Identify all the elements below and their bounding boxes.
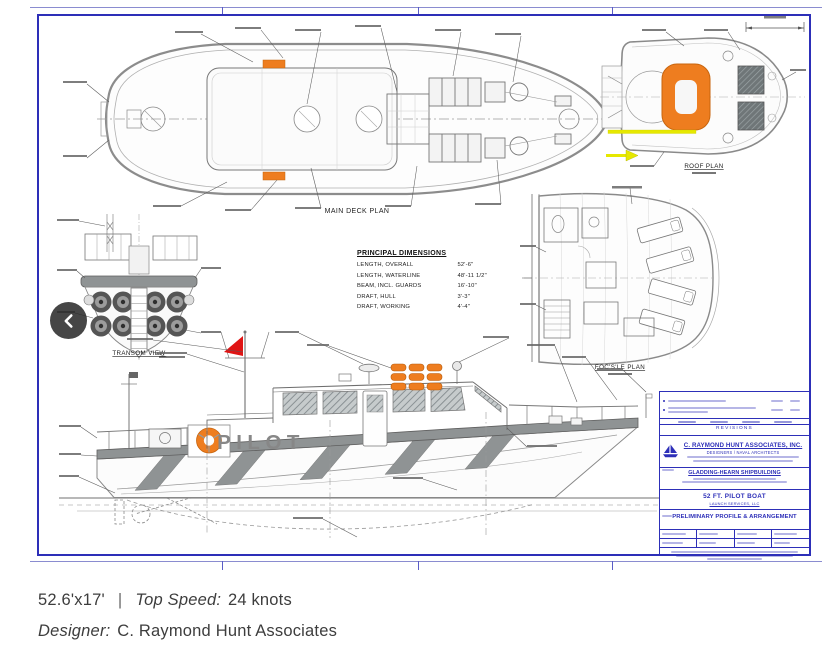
cabin-windows xyxy=(283,386,501,415)
caption: 52.6'x17'|Top Speed: 24 knots Designer: … xyxy=(38,591,337,641)
revisions-section: REVISIONS xyxy=(660,392,809,436)
builder-name: GLADDING-HEARN SHIPBUILDING xyxy=(660,470,809,476)
signal-flag xyxy=(224,336,243,356)
boat-title: 52 FT. PILOT BOAT xyxy=(660,493,809,500)
caption-line-specs: 52.6'x17'|Top Speed: 24 knots xyxy=(38,591,337,610)
caption-designer-value: C. Raymond Hunt Associates xyxy=(117,622,337,640)
principal-dimensions-table: PRINCIPAL DIMENSIONS LENGTH, OVERALL 52'… xyxy=(357,250,519,315)
profile-view: PILOT xyxy=(57,328,669,554)
fender-stack xyxy=(391,364,442,390)
caption-separator: | xyxy=(118,591,123,609)
title-block: REVISIONS C. RAYMOND HUNT ASSOCIATES, IN… xyxy=(659,391,810,555)
carousel-prev-button[interactable] xyxy=(50,302,87,339)
deck-stripe-yellow xyxy=(608,130,696,134)
company-logo-icon xyxy=(662,443,679,460)
dimension-row: DRAFT, WORKING 4'-4" xyxy=(357,304,519,310)
deck-hatch-orange xyxy=(263,60,285,68)
drawing-title: PRELIMINARY PROFILE & ARRANGEMENT xyxy=(660,514,809,520)
chevron-left-icon xyxy=(58,310,80,332)
engine-vent xyxy=(738,102,764,130)
caption-dimensions: 52.6'x17' xyxy=(38,591,105,609)
drawing-title-section: PRELIMINARY PROFILE & ARRANGEMENT xyxy=(660,514,809,530)
searchlight xyxy=(453,362,462,371)
note-strip xyxy=(660,548,809,563)
caption-top-speed-label: Top Speed: xyxy=(135,591,221,609)
dimension-row: LENGTH, WATERLINE 48'-11 1/2" xyxy=(357,273,519,279)
dimension-row: LENGTH, OVERALL 52'-6" xyxy=(357,262,519,268)
sheet-margin-line-top xyxy=(30,7,822,8)
deck-hatch-orange xyxy=(263,172,285,180)
dimension-detail xyxy=(742,12,808,34)
title-block-grid xyxy=(660,530,809,548)
boat-subtitle: LAUNCH SERVICES, LLC xyxy=(660,501,809,506)
hull-name-text: PILOT xyxy=(217,431,305,454)
dimension-row: BEAM, INCL. GUARDS 16'-10" xyxy=(357,283,519,289)
caption-designer-label: Designer: xyxy=(38,622,110,640)
boat-title-section: 52 FT. PILOT BOAT LAUNCH SERVICES, LLC xyxy=(660,490,809,510)
rub-rail-band xyxy=(81,276,197,287)
company-type: DESIGNERS / NAVAL ARCHITECTS xyxy=(679,450,807,455)
caption-top-speed-value: 24 knots xyxy=(228,591,292,609)
dimension-row: DRAFT, HULL 3'-3" xyxy=(357,294,519,300)
page: { "carousel": { "prev_icon": "chevron-le… xyxy=(0,0,830,656)
fold-tick xyxy=(612,561,613,570)
revisions-label: REVISIONS xyxy=(660,424,809,432)
engine-vent xyxy=(738,66,764,94)
yellow-arrow-marker xyxy=(606,150,638,161)
company-section: C. RAYMOND HUNT ASSOCIATES, INC. DESIGNE… xyxy=(660,436,809,468)
builder-section: GLADDING-HEARN SHIPBUILDING xyxy=(660,468,809,490)
fold-tick xyxy=(418,561,419,570)
company-name: C. RAYMOND HUNT ASSOCIATES, INC. xyxy=(679,442,807,449)
roof-plan-view: ROOF PLAN xyxy=(600,26,808,178)
principal-dimensions-title: PRINCIPAL DIMENSIONS xyxy=(357,250,519,257)
main-deck-plan-label: MAIN DECK PLAN xyxy=(325,208,390,215)
fold-tick xyxy=(222,561,223,570)
radar-dome xyxy=(359,364,379,372)
roof-plan-label: ROOF PLAN xyxy=(684,163,723,170)
caption-line-designer: Designer: C. Raymond Hunt Associates xyxy=(38,622,337,641)
mast xyxy=(221,331,269,419)
